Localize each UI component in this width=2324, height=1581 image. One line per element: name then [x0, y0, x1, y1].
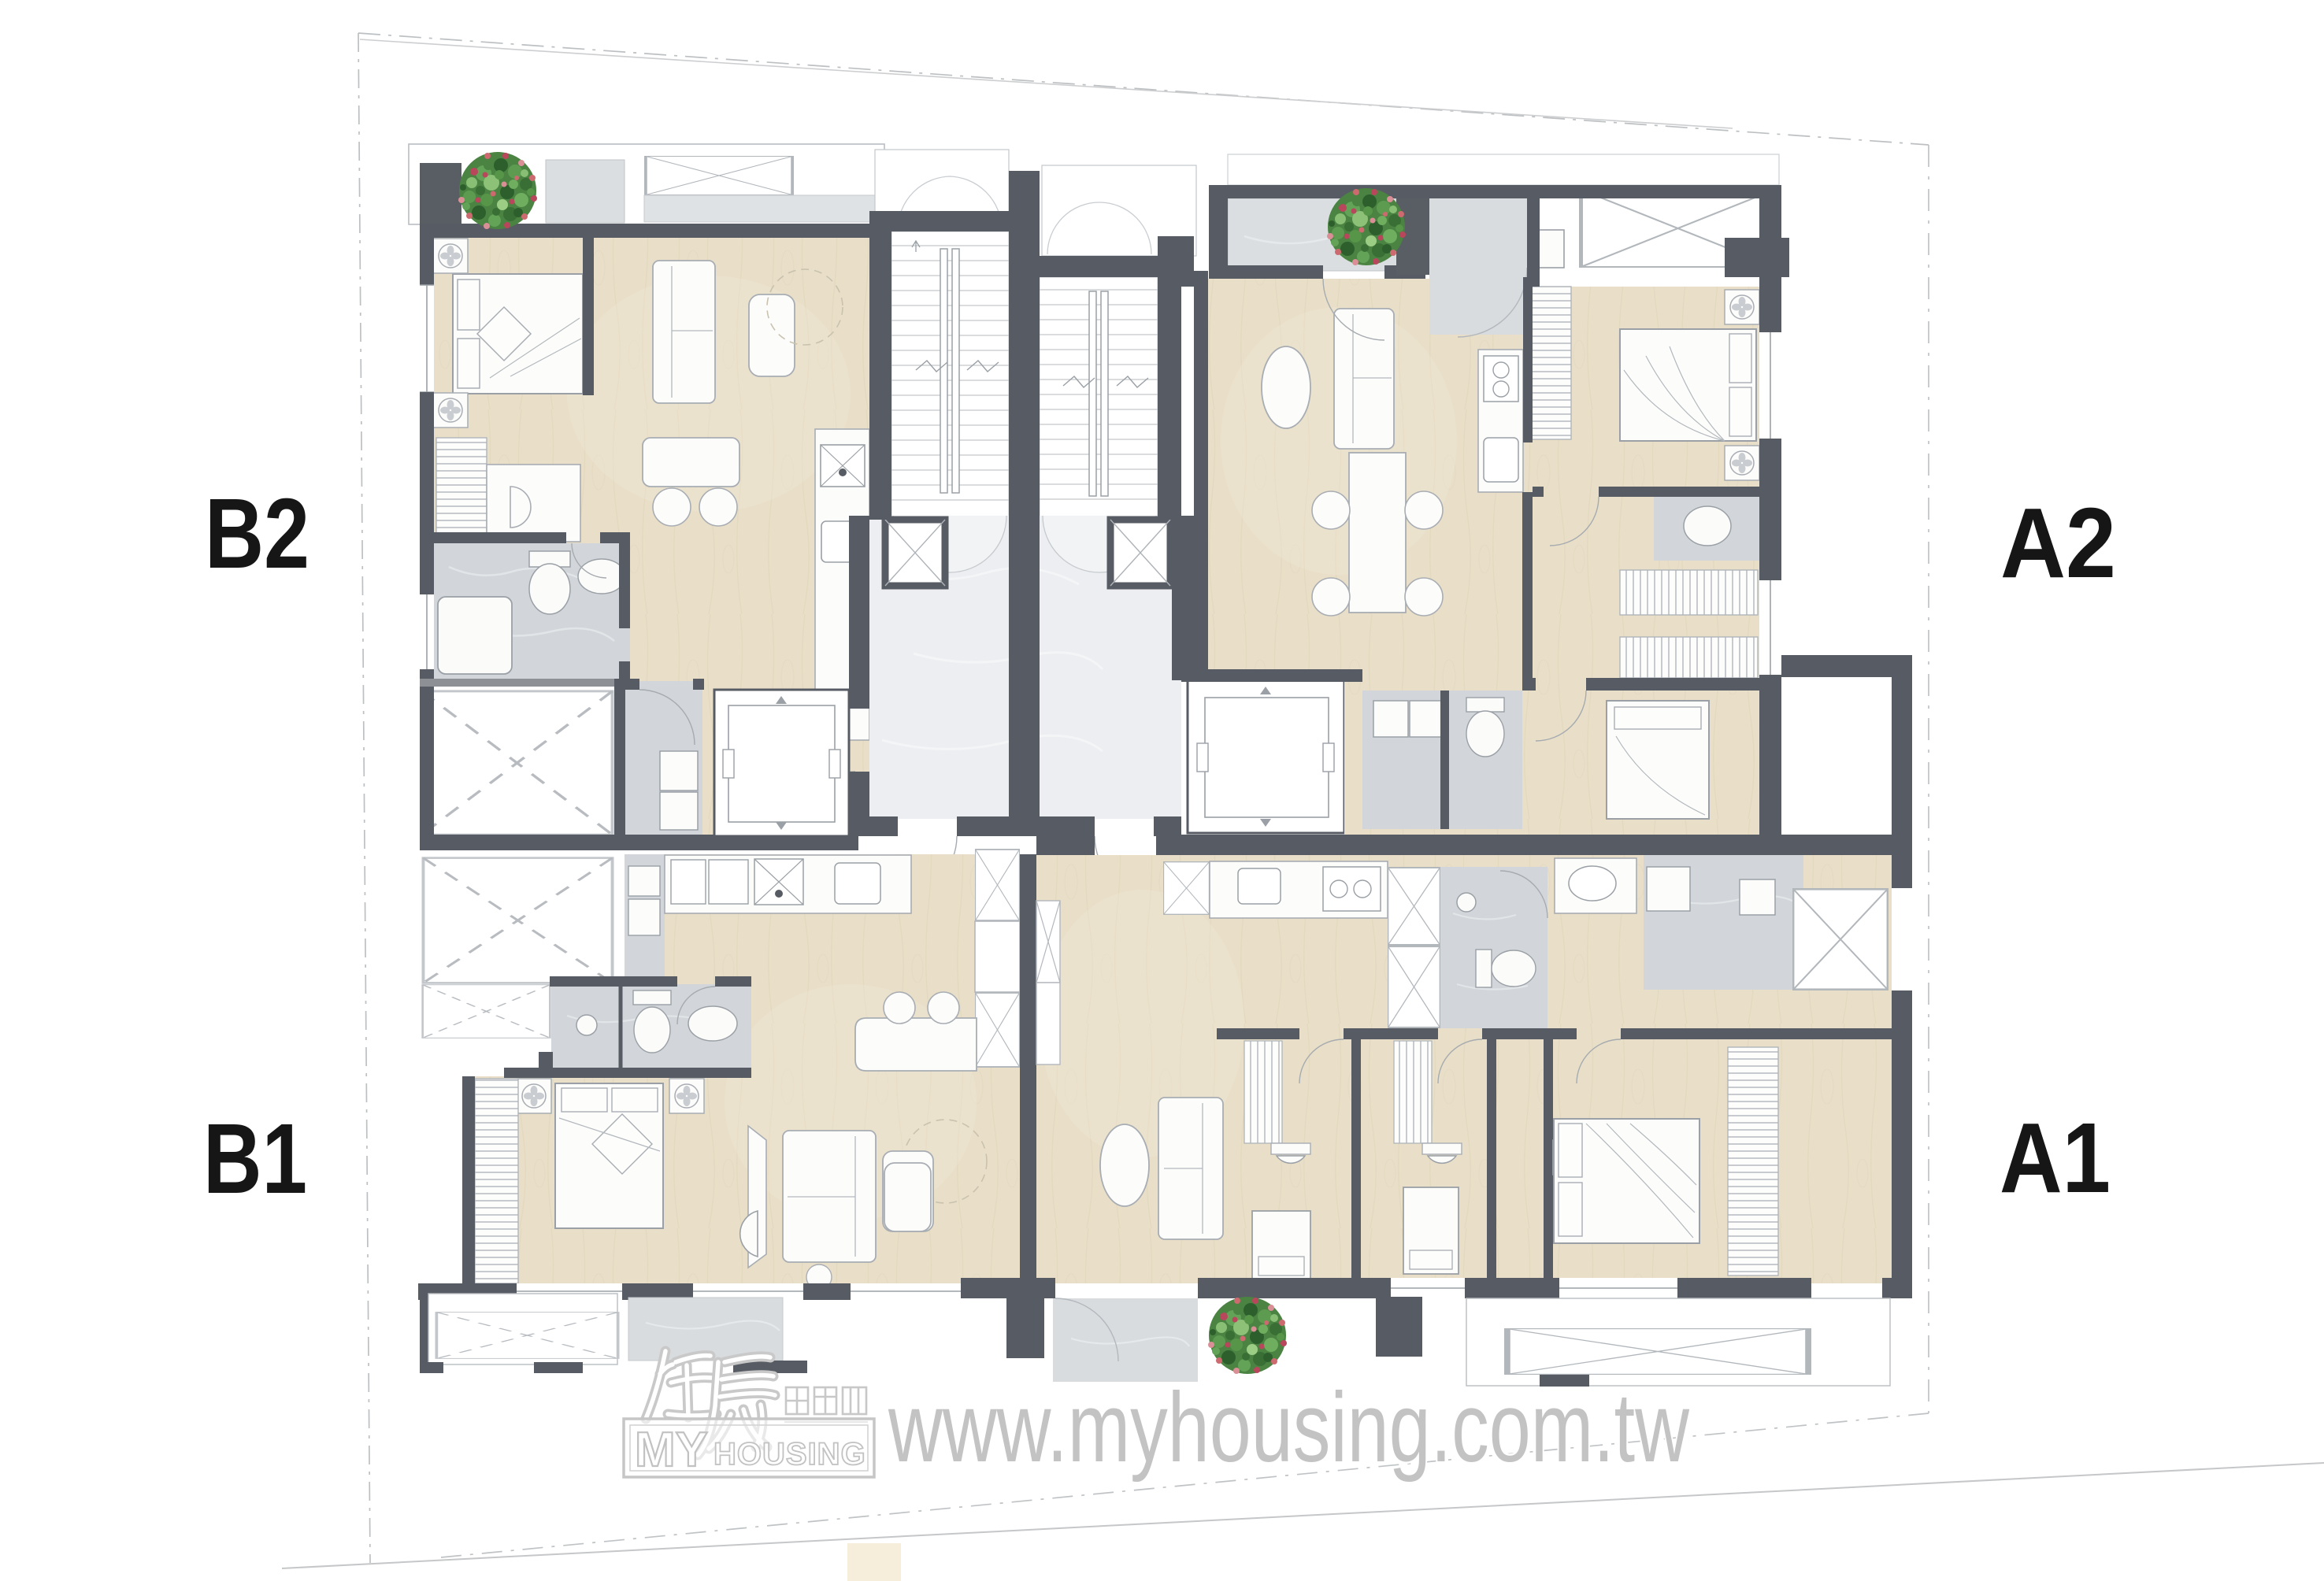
- svg-text:MY: MY: [635, 1423, 708, 1477]
- svg-text:HOUSING: HOUSING: [714, 1437, 866, 1472]
- svg-text:B1: B1: [203, 1103, 307, 1214]
- svg-text:A1: A1: [2000, 1102, 2111, 1213]
- svg-text:B2: B2: [205, 478, 309, 589]
- svg-text:A2: A2: [2000, 487, 2116, 598]
- svg-text:www.myhousing.com.tw: www.myhousing.com.tw: [888, 1373, 1689, 1483]
